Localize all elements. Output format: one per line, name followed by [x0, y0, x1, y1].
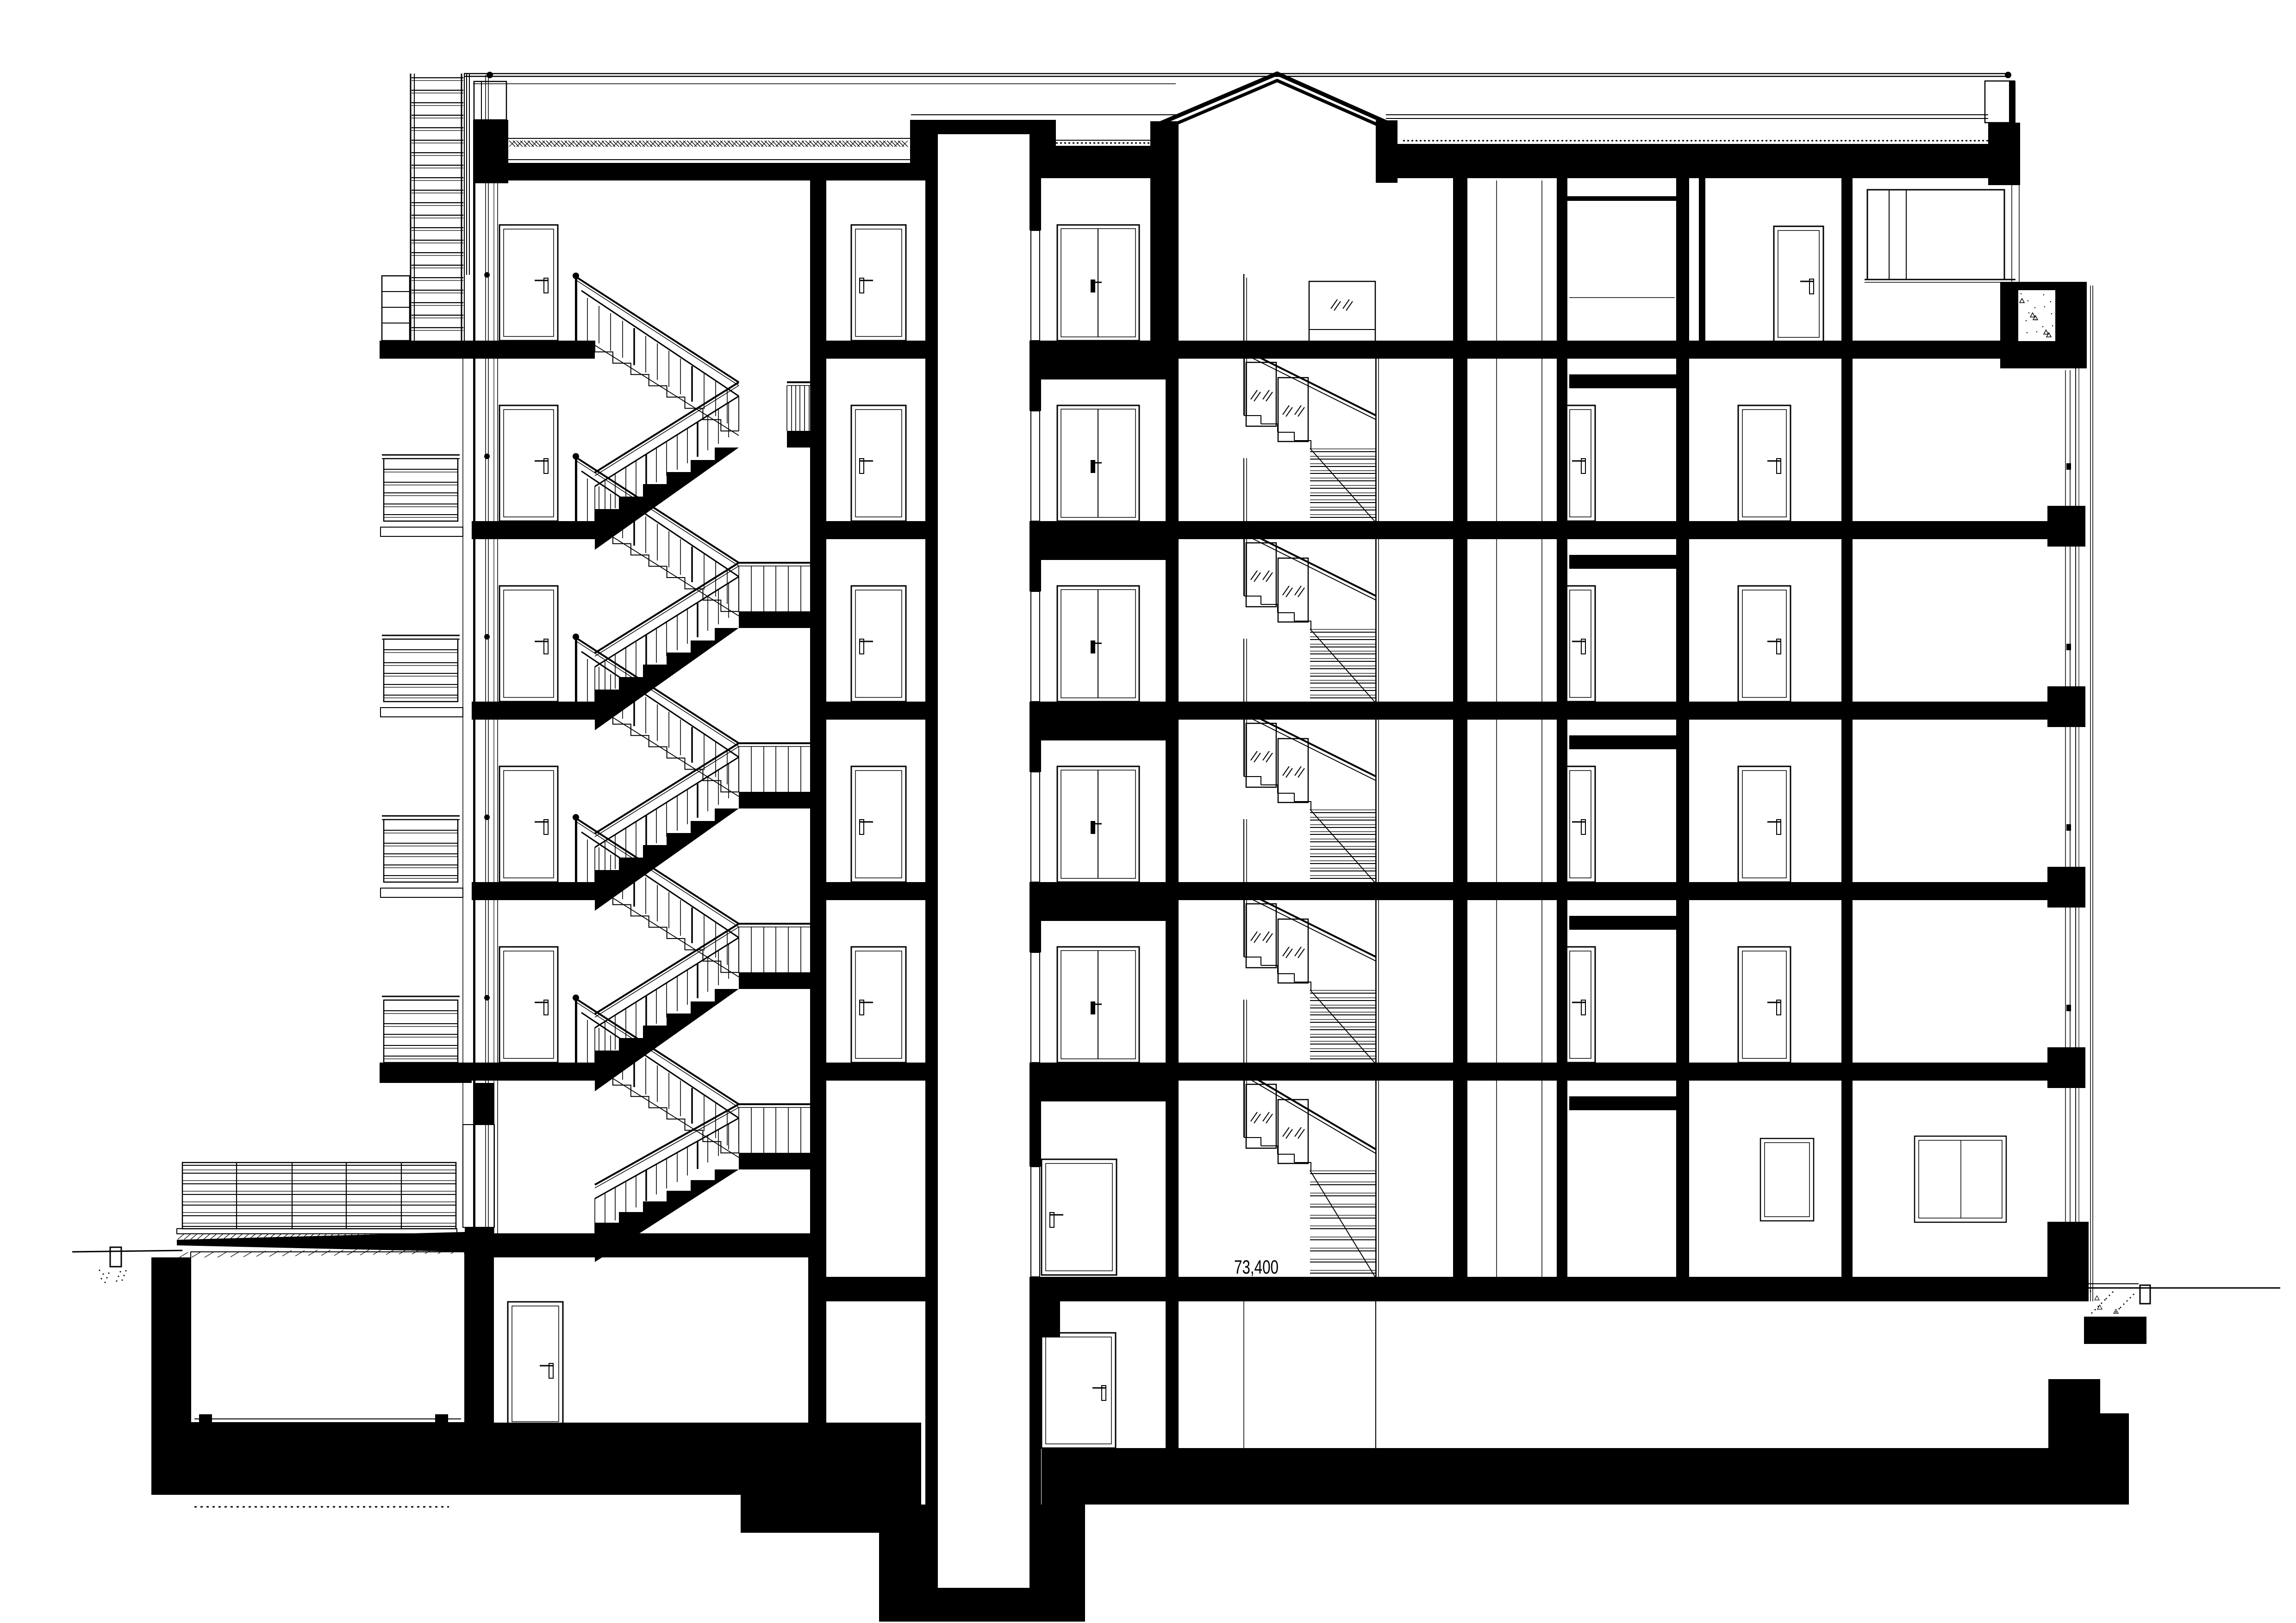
svg-text:73,400: 73,400 [1234, 1256, 1279, 1278]
